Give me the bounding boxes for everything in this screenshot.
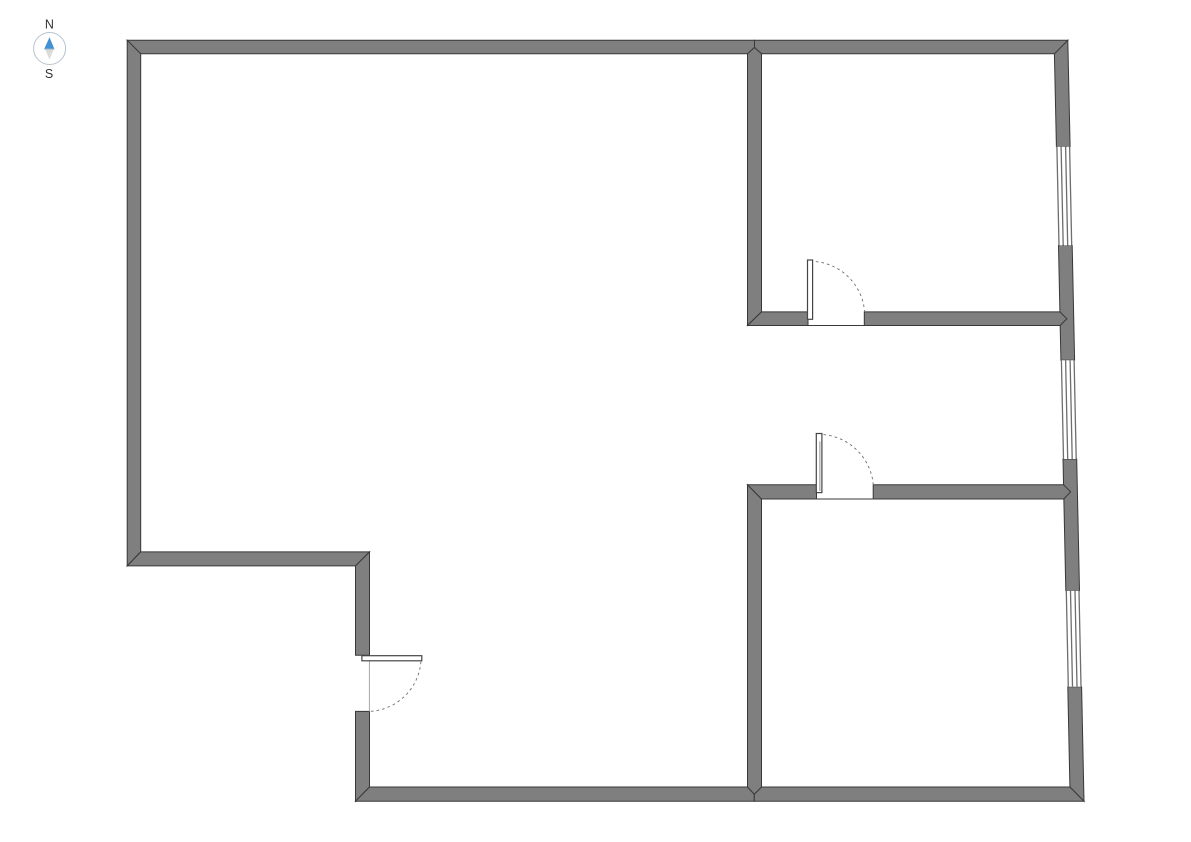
svg-text:N: N xyxy=(45,17,54,31)
svg-text:S: S xyxy=(45,67,53,81)
